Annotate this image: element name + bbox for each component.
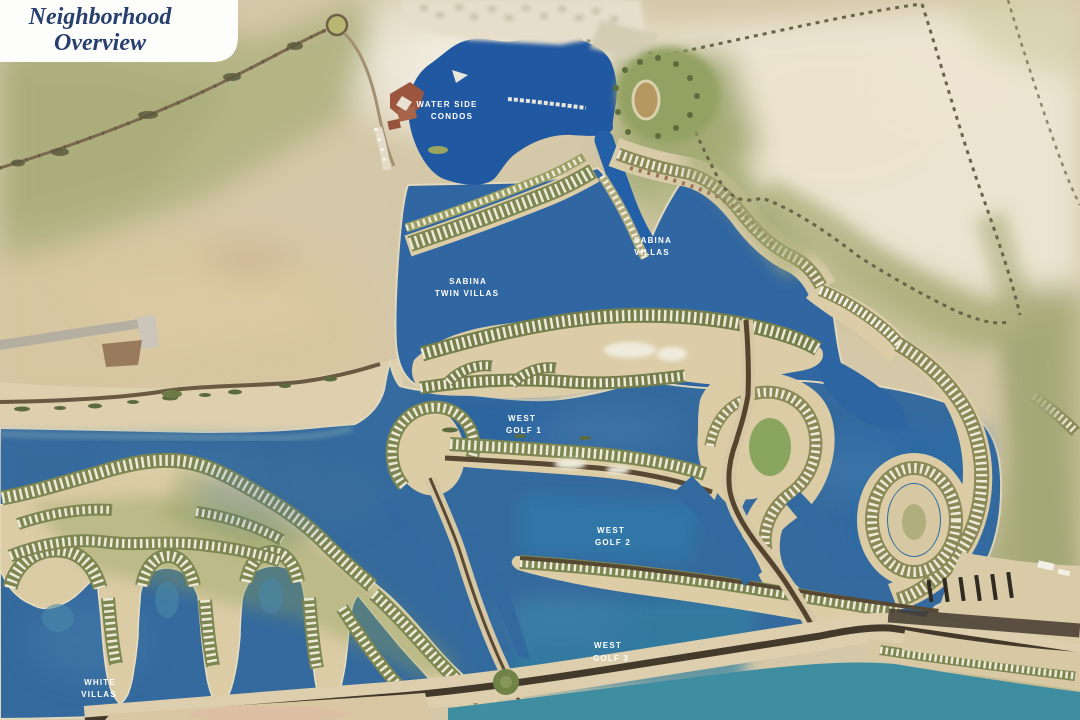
svg-text:SABINA: SABINA	[634, 236, 672, 245]
svg-text:WATER SIDE: WATER SIDE	[416, 100, 477, 109]
svg-text:GOLF 2: GOLF 2	[595, 538, 631, 547]
svg-text:VILLAS: VILLAS	[634, 248, 670, 257]
svg-text:Neighborhood: Neighborhood	[28, 4, 173, 30]
svg-text:CONDOS: CONDOS	[431, 112, 473, 121]
svg-text:WEST: WEST	[594, 641, 622, 650]
svg-text:SABINA: SABINA	[449, 277, 487, 286]
svg-text:GOLF 1: GOLF 1	[506, 426, 542, 435]
svg-text:Overview: Overview	[54, 30, 147, 56]
svg-text:GOLF 3: GOLF 3	[593, 654, 629, 663]
svg-text:WEST: WEST	[508, 414, 536, 423]
svg-text:WHITE: WHITE	[84, 678, 116, 687]
svg-text:VILLAS: VILLAS	[81, 690, 117, 699]
svg-text:TWIN VILLAS: TWIN VILLAS	[435, 289, 499, 298]
svg-text:WEST: WEST	[597, 526, 625, 535]
